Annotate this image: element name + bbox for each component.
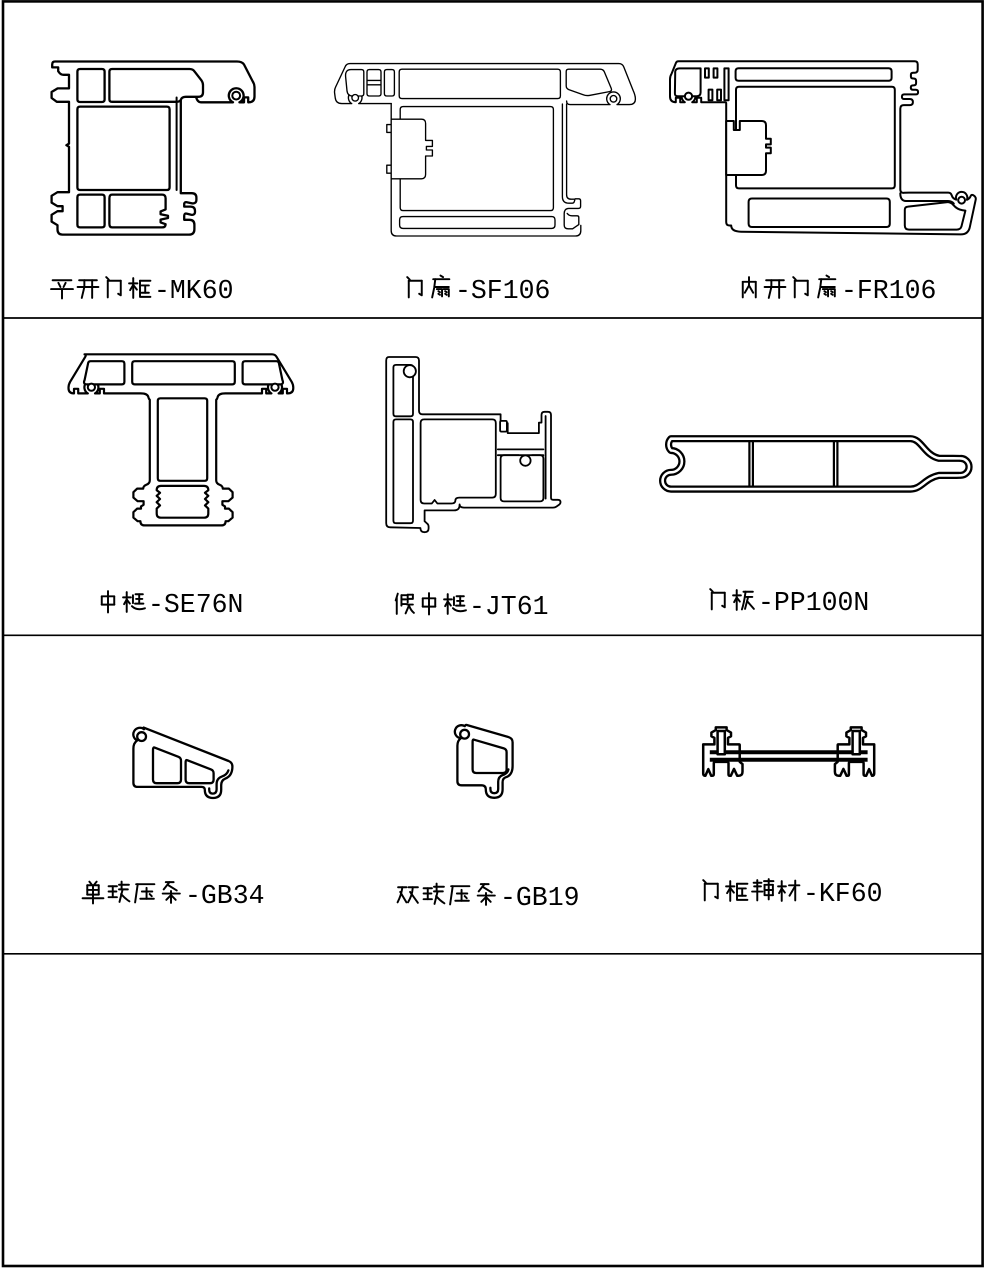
svg-text:-MK60: -MK60 <box>154 276 234 306</box>
svg-text:-SE76N: -SE76N <box>148 590 243 620</box>
svg-text:-KF60: -KF60 <box>803 879 883 909</box>
svg-text:-PP100N: -PP100N <box>758 588 869 618</box>
svg-text:-FR106: -FR106 <box>841 276 936 306</box>
svg-text:-SF106: -SF106 <box>455 276 550 306</box>
svg-text:-GB19: -GB19 <box>500 883 580 913</box>
svg-text:-JT61: -JT61 <box>469 592 549 622</box>
svg-text:-GB34: -GB34 <box>185 881 265 911</box>
